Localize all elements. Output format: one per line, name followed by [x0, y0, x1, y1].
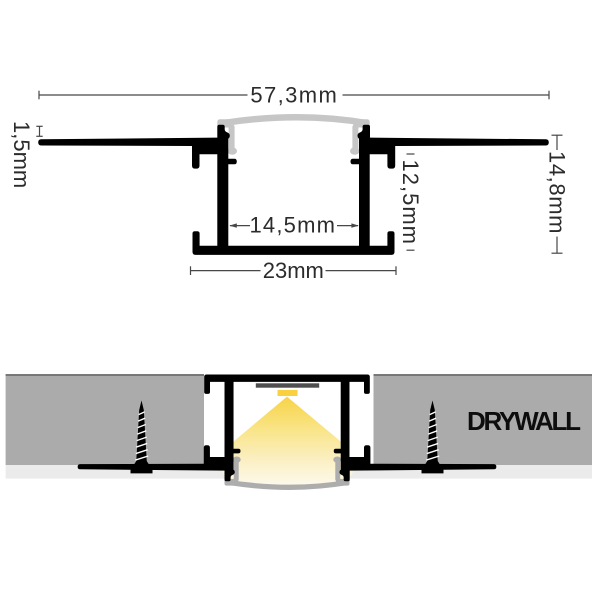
- svg-text:23mm: 23mm: [263, 258, 324, 283]
- svg-text:14,5mm: 14,5mm: [249, 213, 336, 238]
- svg-text:DRYWALL: DRYWALL: [467, 406, 581, 436]
- svg-text:12,5mm: 12,5mm: [398, 160, 423, 245]
- svg-text:14,8mm: 14,8mm: [545, 151, 570, 234]
- svg-text:1,5mm: 1,5mm: [9, 121, 34, 188]
- svg-text:57,3mm: 57,3mm: [250, 82, 338, 107]
